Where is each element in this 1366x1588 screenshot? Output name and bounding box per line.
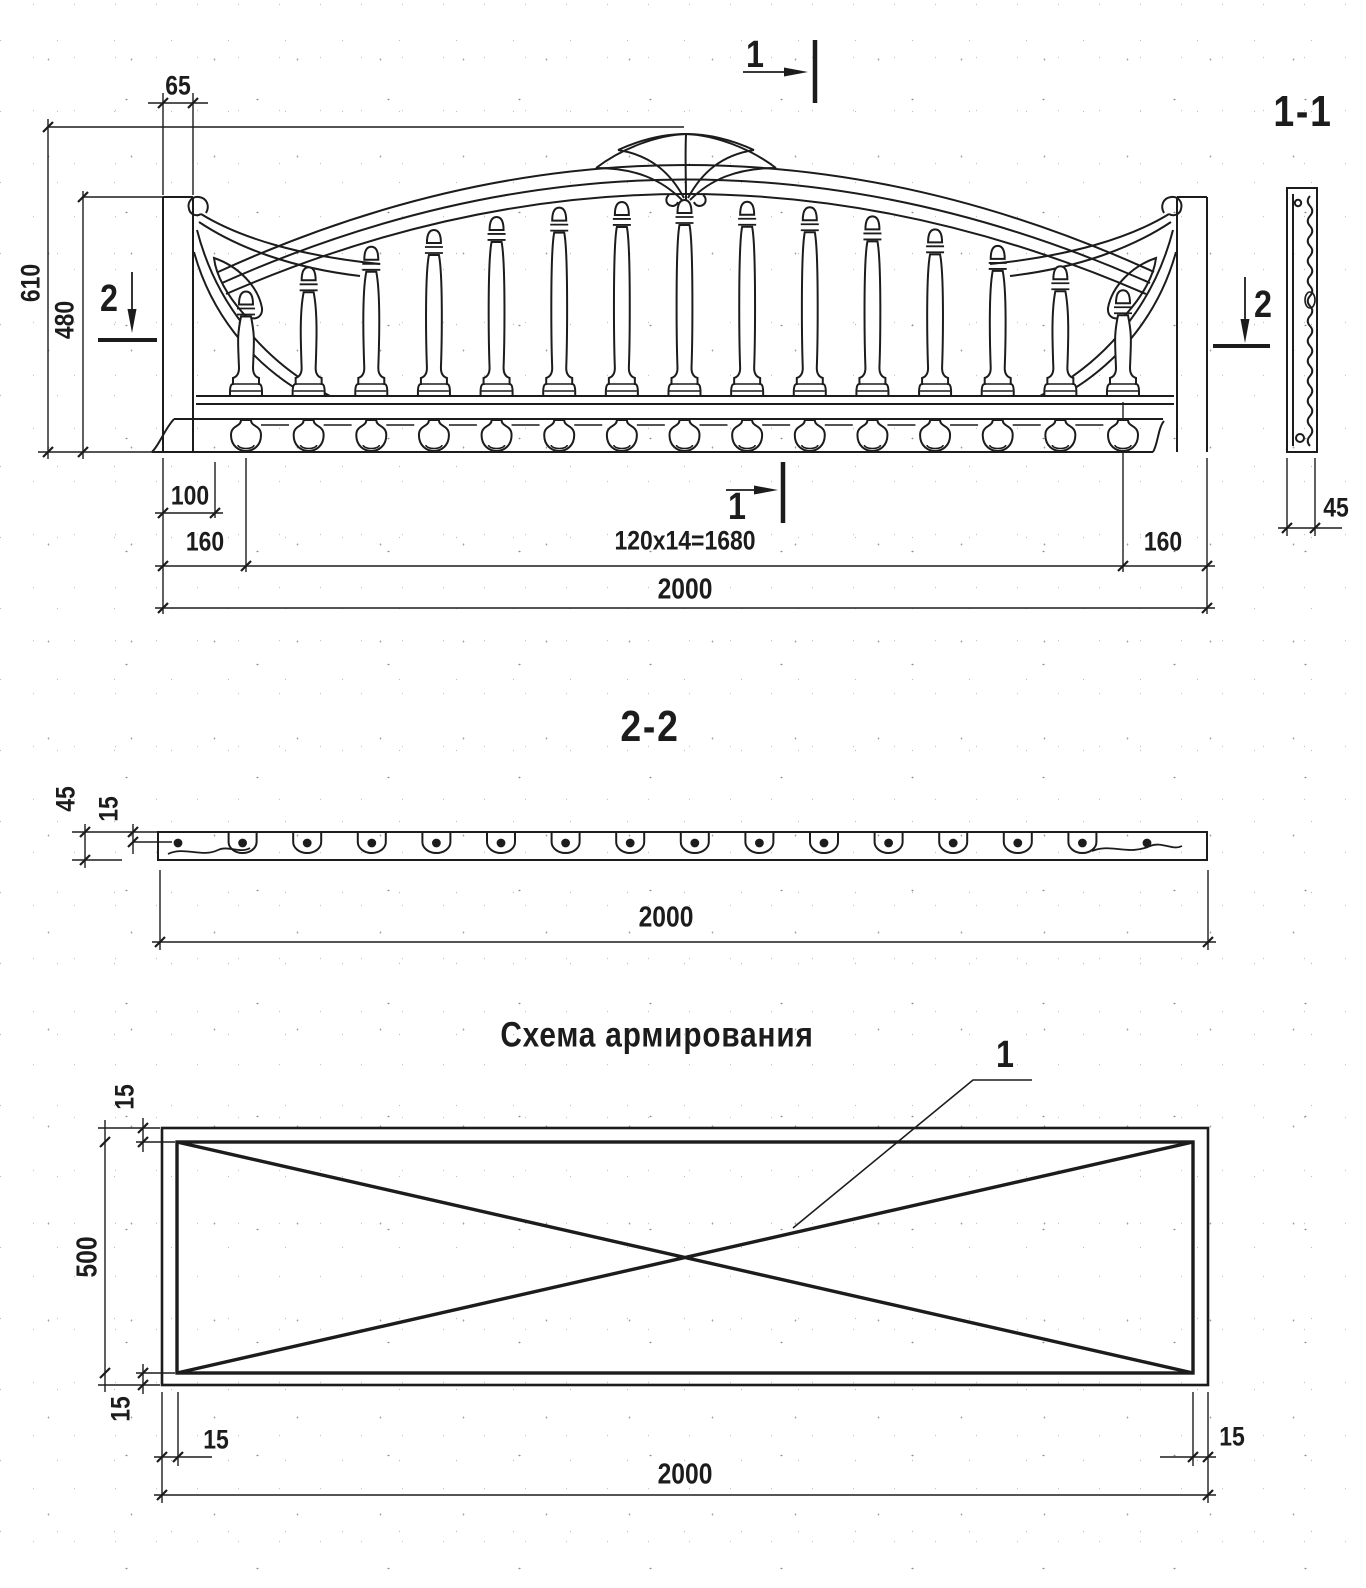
- blueprint-page: 65 610 480 2 1 1 2 1-1 45 100 160 120x14…: [0, 0, 1366, 1588]
- dim-label-margin-left: 160: [186, 529, 224, 556]
- dim-label-base-offset: 100: [171, 483, 209, 510]
- corner-scroll-left: [189, 197, 380, 396]
- dim-label-inset-right: 15: [1219, 1424, 1245, 1451]
- view-label-1-1: 1-1: [1273, 90, 1332, 134]
- elevation-view: [152, 134, 1207, 452]
- dim-label-22-rebar-offset: 15: [96, 796, 123, 822]
- section-mark-1-top: 1: [746, 36, 764, 74]
- profile-contour: [1305, 196, 1315, 446]
- rebar-pockets: [175, 833, 1151, 853]
- dim-label-side-thickness: 45: [1323, 495, 1349, 522]
- dim-label-scheme-height: 500: [74, 1236, 103, 1277]
- dim-label-height-post: 480: [52, 301, 79, 339]
- dim-label-top-width: 65: [165, 73, 191, 100]
- dim-label-inset-top: 15: [112, 1084, 139, 1110]
- dim-label-baluster-spacing: 120x14=1680: [614, 528, 755, 555]
- dim-label-width-total: 2000: [658, 576, 713, 605]
- section-mark-1-bottom: 1: [728, 488, 746, 526]
- section-2-2-view: [158, 832, 1207, 860]
- reinforcement-scheme: [162, 1080, 1208, 1385]
- corner-scroll-right: [990, 197, 1181, 396]
- dim-label-height-total: 610: [18, 264, 45, 302]
- view-label-2-2: 2-2: [620, 705, 679, 749]
- rebar-callout-1: 1: [996, 1036, 1014, 1074]
- reinforcement-title: Схема армирования: [500, 1018, 813, 1053]
- dim-label-22-width: 2000: [639, 904, 694, 933]
- dim-label-22-thickness: 45: [53, 786, 80, 812]
- dim-label-scheme-width: 2000: [658, 1461, 713, 1490]
- technical-drawing: [0, 0, 1366, 1588]
- dim-label-margin-right: 160: [1144, 529, 1182, 556]
- dim-label-inset-left: 15: [203, 1427, 229, 1454]
- section-mark-2-left: 2: [100, 280, 118, 318]
- section-mark-2-right: 2: [1254, 286, 1272, 324]
- drop-ornaments: [231, 420, 1138, 451]
- section-1-1-view: [1287, 188, 1317, 452]
- dim-label-inset-bottom: 15: [108, 1396, 135, 1422]
